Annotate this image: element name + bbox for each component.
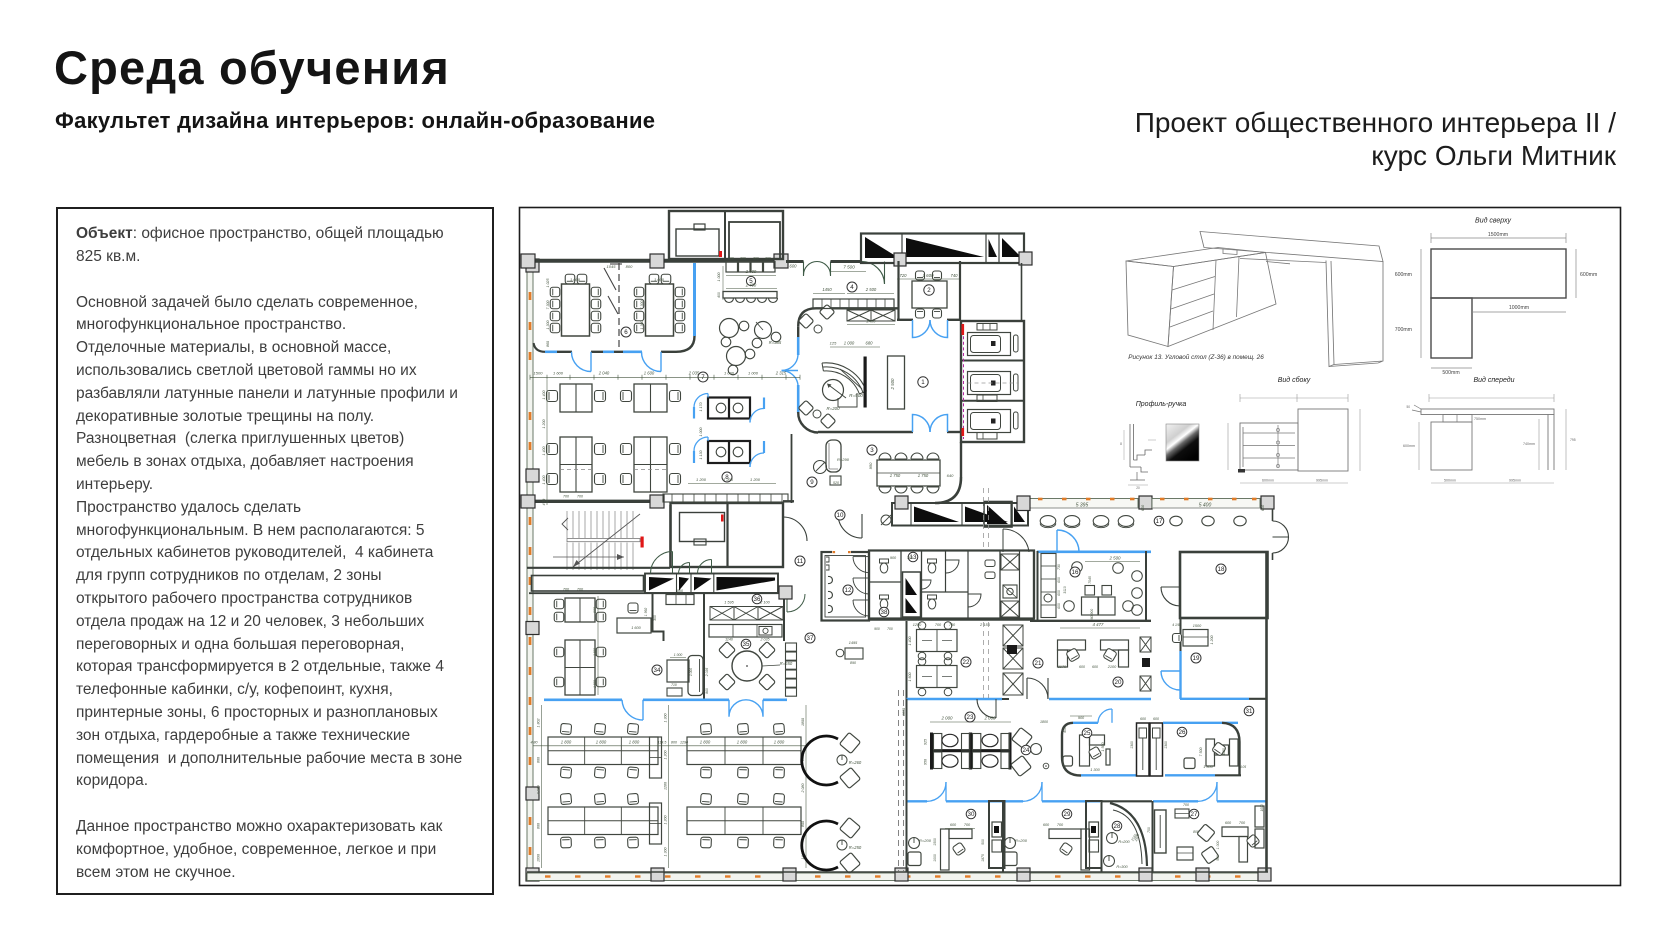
svg-text:1000: 1000 — [933, 854, 937, 862]
svg-text:24: 24 — [1023, 747, 1030, 754]
svg-text:4 477: 4 477 — [1093, 622, 1105, 627]
svg-text:860: 860 — [705, 688, 709, 694]
svg-text:4: 4 — [850, 284, 854, 291]
svg-text:Вид сбоку: Вид сбоку — [1278, 376, 1311, 384]
svg-text:1 000: 1 000 — [844, 341, 855, 346]
svg-text:700: 700 — [949, 623, 956, 627]
svg-text:1 000: 1 000 — [748, 371, 759, 376]
svg-text:1170: 1170 — [1058, 665, 1067, 669]
svg-text:600: 600 — [1043, 823, 1050, 827]
svg-text:4 1/8: 4 1/8 — [1172, 623, 1180, 627]
svg-text:1 000: 1 000 — [699, 428, 703, 437]
svg-text:1 000: 1 000 — [689, 668, 693, 676]
svg-text:600: 600 — [753, 257, 759, 261]
svg-text:500: 500 — [981, 839, 985, 845]
svg-text:1 600: 1 600 — [923, 273, 935, 278]
svg-text:700: 700 — [887, 627, 893, 631]
svg-text:1 200: 1 200 — [750, 477, 761, 482]
svg-text:5 395: 5 395 — [1076, 503, 1089, 509]
svg-text:1 992: 1 992 — [644, 608, 648, 617]
svg-text:300: 300 — [653, 615, 657, 621]
svg-text:1 800: 1 800 — [629, 740, 640, 745]
svg-text:12: 12 — [845, 587, 852, 594]
svg-text:1 400: 1 400 — [542, 476, 546, 485]
svg-text:1250: 1250 — [913, 623, 922, 627]
svg-text:1 400: 1 400 — [542, 391, 546, 400]
svg-text:1400: 1400 — [593, 680, 597, 688]
svg-text:Рисунок 13. Угловой стол (Z-36: Рисунок 13. Угловой стол (Z-36) в помещ.… — [1128, 353, 1264, 361]
svg-text:2 315: 2 315 — [775, 371, 787, 376]
svg-text:900: 900 — [890, 556, 897, 560]
svg-text:1000: 1000 — [1260, 804, 1264, 811]
svg-text:600mm: 600mm — [1580, 272, 1597, 278]
svg-text:600: 600 — [1092, 665, 1098, 669]
svg-text:3110: 3110 — [1063, 586, 1067, 593]
svg-text:600: 600 — [790, 264, 798, 269]
svg-text:1 200: 1 200 — [1210, 636, 1214, 645]
svg-text:700: 700 — [563, 495, 569, 499]
svg-text:2 500: 2 500 — [890, 378, 895, 391]
svg-text:2 000: 2 000 — [941, 716, 954, 721]
svg-text:10: 10 — [837, 512, 844, 519]
svg-text:1 200: 1 200 — [664, 751, 668, 760]
svg-text:2 500: 2 500 — [1109, 556, 1122, 561]
svg-text:600mm: 600mm — [1262, 479, 1274, 483]
svg-text:600: 600 — [1140, 717, 1146, 721]
svg-text:2 155: 2 155 — [979, 622, 991, 627]
svg-text:700: 700 — [1057, 823, 1064, 827]
svg-text:1045: 1045 — [607, 264, 617, 269]
svg-text:1 600: 1 600 — [908, 673, 912, 682]
svg-text:1450: 1450 — [822, 287, 832, 292]
svg-text:R=300: R=300 — [1116, 865, 1128, 869]
svg-text:R=200: R=200 — [919, 838, 932, 843]
svg-text:26: 26 — [1179, 729, 1186, 736]
svg-text:1 750: 1 750 — [918, 473, 929, 478]
svg-text:700: 700 — [577, 588, 584, 592]
svg-text:2 035: 2 035 — [705, 668, 709, 678]
svg-text:7 500: 7 500 — [843, 265, 855, 270]
svg-text:600: 600 — [1225, 821, 1232, 825]
svg-text:1 000: 1 000 — [674, 653, 683, 657]
svg-text:740mm: 740mm — [1523, 442, 1535, 446]
svg-text:600: 600 — [950, 823, 957, 827]
svg-text:R=200: R=200 — [826, 406, 840, 411]
svg-text:800: 800 — [537, 757, 541, 763]
svg-text:Вид сверху: Вид сверху — [1475, 217, 1511, 225]
svg-text:800: 800 — [801, 821, 805, 827]
svg-text:38: 38 — [881, 609, 888, 616]
svg-text:995mm: 995mm — [1509, 479, 1521, 483]
svg-text:950: 950 — [868, 462, 873, 469]
svg-text:1 000: 1 000 — [717, 273, 721, 282]
svg-text:1630: 1630 — [902, 708, 906, 716]
svg-text:36: 36 — [754, 596, 761, 603]
svg-text:1 750: 1 750 — [890, 473, 901, 478]
svg-text:19: 19 — [1193, 655, 1200, 662]
svg-text:1360: 1360 — [1164, 741, 1168, 749]
svg-text:700: 700 — [1239, 821, 1246, 825]
svg-text:2 400: 2 400 — [745, 269, 757, 274]
svg-text:1 025: 1 025 — [546, 279, 550, 288]
svg-text:3625: 3625 — [1222, 748, 1226, 756]
svg-text:700: 700 — [907, 556, 914, 560]
svg-text:1000mm: 1000mm — [1509, 305, 1529, 311]
svg-text:20: 20 — [1115, 679, 1122, 686]
svg-text:2: 2 — [927, 287, 931, 294]
svg-text:600: 600 — [1141, 504, 1145, 511]
svg-text:600: 600 — [765, 257, 771, 261]
svg-text:600: 600 — [1153, 717, 1159, 721]
svg-text:520: 520 — [833, 481, 839, 485]
svg-text:11: 11 — [797, 558, 804, 565]
svg-text:1 200: 1 200 — [723, 477, 734, 482]
svg-text:600: 600 — [1261, 504, 1265, 511]
svg-text:31: 31 — [1246, 708, 1253, 715]
svg-text:800: 800 — [1193, 830, 1199, 834]
svg-text:6: 6 — [624, 329, 628, 336]
svg-text:1 800: 1 800 — [700, 740, 711, 745]
svg-text:3: 3 — [870, 447, 874, 454]
svg-text:2 035: 2 035 — [760, 638, 770, 642]
svg-text:800: 800 — [626, 264, 633, 269]
svg-text:1 800: 1 800 — [737, 740, 748, 745]
svg-text:7 300: 7 300 — [640, 301, 644, 310]
svg-text:800: 800 — [671, 741, 677, 745]
svg-text:125: 125 — [830, 341, 837, 346]
svg-text:2400: 2400 — [866, 319, 877, 324]
svg-text:23: 23 — [967, 714, 974, 721]
svg-text:1 400: 1 400 — [542, 447, 546, 456]
svg-text:700: 700 — [935, 623, 942, 627]
svg-text:900: 900 — [1078, 716, 1085, 720]
svg-text:1500: 1500 — [933, 838, 937, 846]
svg-text:34: 34 — [654, 667, 661, 674]
svg-text:1 595: 1 595 — [724, 601, 734, 605]
svg-text:700: 700 — [1183, 803, 1189, 807]
svg-text:1 400: 1 400 — [908, 637, 912, 646]
svg-text:4.80: 4.80 — [531, 741, 538, 745]
svg-text:25: 25 — [1084, 730, 1091, 737]
svg-text:700: 700 — [577, 495, 583, 499]
svg-text:1 300: 1 300 — [640, 321, 644, 330]
svg-text:1 800: 1 800 — [596, 740, 607, 745]
svg-text:7045: 7045 — [1088, 576, 1092, 584]
svg-text:7: 7 — [701, 374, 705, 381]
svg-text:114.5: 114.5 — [658, 741, 667, 745]
svg-text:1 000: 1 000 — [654, 277, 665, 282]
svg-text:1 500: 1 500 — [1101, 743, 1105, 752]
svg-text:600mm: 600mm — [1395, 272, 1412, 278]
svg-text:925: 925 — [924, 739, 928, 745]
svg-text:7 300: 7 300 — [546, 301, 550, 310]
svg-text:1 600: 1 600 — [631, 626, 641, 630]
svg-text:18: 18 — [1218, 566, 1225, 573]
svg-text:1500: 1500 — [1193, 624, 1202, 628]
svg-text:22: 22 — [963, 659, 970, 666]
svg-text:5 400: 5 400 — [1199, 503, 1212, 509]
svg-text:28: 28 — [1114, 823, 1121, 830]
svg-text:1800: 1800 — [801, 718, 805, 726]
svg-text:500mm: 500mm — [1444, 479, 1456, 483]
svg-text:800: 800 — [537, 823, 541, 829]
svg-text:1140: 1140 — [725, 638, 733, 642]
svg-text:1 300: 1 300 — [1203, 765, 1213, 769]
svg-text:1500: 1500 — [534, 371, 544, 376]
svg-text:700: 700 — [563, 588, 570, 592]
svg-text:710: 710 — [671, 683, 677, 687]
svg-text:1 200: 1 200 — [664, 816, 668, 825]
svg-text:1 000: 1 000 — [1216, 841, 1220, 850]
svg-text:2 500: 2 500 — [865, 287, 877, 292]
svg-text:1290: 1290 — [680, 741, 688, 745]
svg-text:20: 20 — [1136, 486, 1140, 490]
svg-text:1 200: 1 200 — [542, 420, 546, 429]
svg-text:16: 16 — [1072, 569, 1079, 576]
svg-text:600: 600 — [728, 257, 734, 261]
svg-text:29: 29 — [1064, 811, 1071, 818]
svg-text:600: 600 — [1057, 590, 1061, 596]
svg-text:21: 21 — [1035, 660, 1042, 667]
svg-text:2 080: 2 080 — [537, 786, 541, 796]
svg-text:1 600: 1 600 — [553, 371, 564, 376]
svg-text:1800: 1800 — [1040, 720, 1048, 724]
svg-text:1495: 1495 — [849, 641, 858, 645]
svg-text:1 300: 1 300 — [546, 321, 550, 330]
svg-text:950: 950 — [924, 759, 928, 765]
svg-text:900: 900 — [593, 607, 597, 613]
svg-text:1 300: 1 300 — [1090, 768, 1100, 772]
svg-text:890: 890 — [850, 661, 856, 665]
svg-text:1 600: 1 600 — [644, 371, 655, 376]
svg-text:4.05: 4.05 — [1240, 765, 1246, 769]
svg-text:2 040: 2 040 — [598, 371, 610, 376]
svg-text:800: 800 — [677, 589, 683, 593]
svg-text:600: 600 — [1057, 577, 1061, 583]
svg-text:Вид спереди: Вид спереди — [1473, 376, 1514, 384]
svg-text:R=200: R=200 — [1015, 838, 1028, 843]
svg-text:1 000: 1 000 — [570, 277, 581, 282]
svg-text:35: 35 — [743, 641, 750, 648]
svg-text:37: 37 — [807, 635, 814, 642]
svg-text:400: 400 — [1063, 727, 1067, 733]
svg-text:9: 9 — [810, 479, 814, 486]
svg-text:1 200: 1 200 — [696, 477, 707, 482]
svg-text:600: 600 — [1079, 665, 1085, 669]
svg-text:700: 700 — [1147, 827, 1151, 833]
svg-text:2 400: 2 400 — [745, 283, 757, 288]
svg-text:1 000: 1 000 — [724, 371, 735, 376]
svg-text:1 170: 1 170 — [699, 403, 703, 412]
svg-text:R=650: R=650 — [780, 661, 793, 666]
svg-text:30: 30 — [968, 811, 975, 818]
svg-text:17: 17 — [1156, 518, 1163, 525]
svg-text:640: 640 — [947, 473, 954, 478]
svg-text:2 080: 2 080 — [801, 784, 805, 794]
svg-text:R=250: R=250 — [849, 845, 862, 850]
svg-text:795: 795 — [1570, 438, 1576, 442]
svg-text:R=290: R=290 — [837, 457, 850, 462]
svg-text:720: 720 — [900, 273, 908, 278]
svg-text:R=200: R=200 — [1118, 840, 1130, 844]
svg-text:500: 500 — [1216, 855, 1220, 861]
svg-text:1360: 1360 — [1130, 741, 1134, 749]
svg-text:1690: 1690 — [537, 854, 541, 862]
svg-text:860: 860 — [546, 341, 550, 347]
svg-text:995mm: 995mm — [1316, 479, 1328, 483]
svg-text:2 000: 2 000 — [984, 716, 997, 721]
svg-text:R=260: R=260 — [849, 760, 862, 765]
svg-text:1500mm: 1500mm — [1488, 232, 1508, 238]
svg-text:1400: 1400 — [593, 648, 597, 656]
svg-text:700: 700 — [964, 823, 971, 827]
svg-text:680: 680 — [866, 341, 874, 346]
svg-text:Профиль-ручка: Профиль-ручка — [1136, 401, 1187, 408]
svg-text:730: 730 — [1057, 564, 1061, 570]
svg-text:400: 400 — [717, 292, 721, 298]
svg-text:2100: 2100 — [1107, 665, 1117, 669]
svg-text:R=500: R=500 — [849, 393, 863, 398]
svg-text:R=385: R=385 — [769, 340, 782, 345]
svg-text:1875: 1875 — [981, 854, 985, 862]
svg-text:8: 8 — [1120, 442, 1122, 446]
svg-text:1 300: 1 300 — [664, 714, 668, 723]
svg-text:1: 1 — [921, 379, 925, 386]
svg-text:2 035: 2 035 — [688, 371, 700, 376]
svg-text:1 802: 1 802 — [537, 719, 541, 728]
svg-text:600: 600 — [740, 257, 746, 261]
svg-text:27: 27 — [1191, 811, 1198, 818]
svg-text:7 500: 7 500 — [1199, 748, 1203, 757]
svg-text:1280: 1280 — [664, 782, 668, 790]
svg-text:1 300: 1 300 — [664, 848, 668, 857]
svg-text:700mm: 700mm — [1395, 327, 1412, 333]
svg-text:740: 740 — [951, 273, 959, 278]
svg-text:1 800: 1 800 — [774, 740, 785, 745]
svg-text:600mm: 600mm — [1403, 444, 1415, 448]
svg-text:500mm: 500mm — [1442, 370, 1459, 376]
svg-text:600: 600 — [1057, 603, 1061, 609]
svg-text:900: 900 — [874, 627, 880, 631]
svg-text:1 800: 1 800 — [561, 740, 572, 745]
svg-text:50: 50 — [1406, 405, 1410, 409]
svg-text:1 130: 1 130 — [699, 451, 703, 460]
svg-text:4 78: 4 78 — [542, 499, 546, 506]
svg-text:750mm: 750mm — [1474, 417, 1486, 421]
